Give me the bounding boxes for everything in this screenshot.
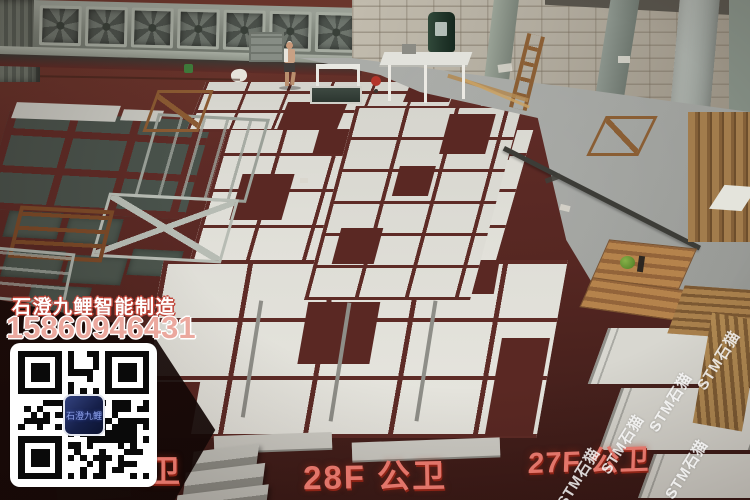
debris [300, 178, 308, 183]
qr-code: 石澄九鲤 [10, 343, 157, 487]
small-machine [371, 76, 381, 86]
debris [618, 56, 630, 63]
floor-gap [439, 114, 496, 154]
factory-floor-photo: ⌂STM石猫 ⌂STM石猫 ⌂STM石猫 ⌂STM石猫 ⌂STM石猫 公卫 28… [0, 0, 750, 500]
exhaust-fan [315, 12, 358, 53]
exhaust-fan [85, 6, 128, 47]
water-tank [428, 12, 455, 52]
phone-number: 15860946431 [6, 310, 196, 346]
worker [279, 42, 301, 90]
floor-gap [485, 338, 550, 436]
melon [620, 256, 635, 269]
table-item [402, 44, 416, 54]
work-table [382, 52, 470, 102]
floor-hose [40, 75, 240, 80]
exhaust-fan [177, 9, 220, 50]
steel-column [729, 0, 750, 118]
floor-label-28f: 28F 公卫 [303, 449, 448, 500]
floor-gap [277, 102, 348, 130]
floor-gap [332, 228, 384, 264]
leaning-wood-racks [688, 112, 750, 242]
exhaust-fan [131, 7, 174, 48]
qr-center-logo: 石澄九鲤 [63, 394, 105, 436]
steel-rack [91, 193, 239, 264]
white-sack [230, 68, 248, 84]
exhaust-fan [39, 5, 82, 46]
green-slab-stack [310, 86, 362, 104]
floor-gap [392, 166, 436, 196]
green-bucket [184, 64, 193, 73]
